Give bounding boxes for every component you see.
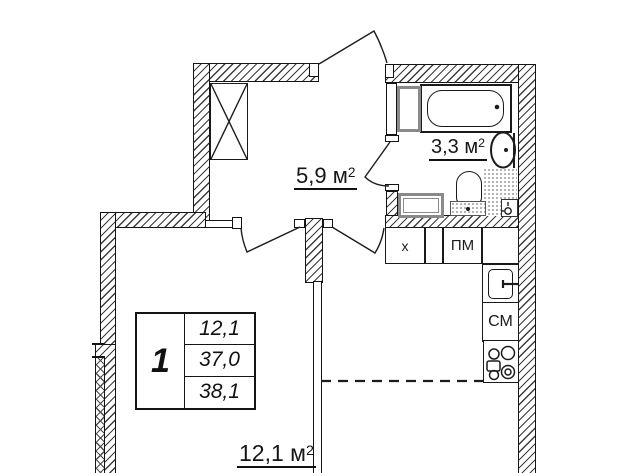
bathroom-cabinet-icon bbox=[397, 86, 421, 132]
wall-left-insulation bbox=[95, 357, 105, 473]
wall-top-left bbox=[193, 63, 319, 82]
entrance-jamb-left bbox=[309, 63, 319, 77]
toilet-icon bbox=[456, 171, 482, 204]
hallway-area-sup: 2 bbox=[348, 165, 356, 180]
bathroom-area-text: 3,3 м bbox=[431, 136, 478, 158]
wardrobe-icon bbox=[210, 83, 248, 160]
wall-top-right bbox=[385, 64, 519, 83]
wall-vertical-hall-left bbox=[193, 63, 210, 228]
bathroom-area-sup: 2 bbox=[478, 136, 485, 150]
kitchen-sink-bowl bbox=[488, 269, 513, 299]
washer-label-text: СМ bbox=[488, 313, 513, 331]
pillar-jamb-right bbox=[323, 219, 333, 228]
dishwasher-label: ПМ bbox=[443, 227, 482, 264]
living-room-area-sup: 2 bbox=[306, 443, 314, 459]
wall-right bbox=[518, 64, 536, 473]
bathroom-area-label: 3,3 м2 bbox=[429, 137, 487, 161]
bathroom-wall-left-bottom bbox=[386, 191, 398, 218]
washer-label: СМ bbox=[482, 302, 519, 342]
legend-floor-area-value: 37,0 bbox=[185, 345, 254, 376]
bathroom-door-jamb-top bbox=[385, 135, 399, 142]
entrance-jamb-right bbox=[385, 64, 394, 78]
washbasin-icon bbox=[491, 133, 515, 169]
legend-total-area-value: 38,1 bbox=[185, 377, 254, 408]
pillar-jamb-left bbox=[294, 219, 305, 228]
hallway-area-text: 5,9 м bbox=[296, 163, 348, 188]
living-room-area-text: 12,1 м bbox=[239, 440, 306, 466]
bathroom-door-swing bbox=[365, 142, 390, 186]
floor-plan: х ПМ СМ 5,9 м2 3,3 м2 12,1 м2 1 12,1 37,… bbox=[0, 0, 640, 473]
kitchen-door-swing bbox=[332, 227, 384, 253]
bathtub-inner-icon bbox=[427, 90, 504, 127]
bathroom-door-jamb-bottom bbox=[385, 184, 399, 191]
wall-ledge-tick-2 bbox=[92, 356, 105, 358]
room-door-jamb bbox=[232, 217, 242, 229]
legend-living-area-value: 12,1 bbox=[185, 314, 254, 345]
toilet-base bbox=[450, 201, 486, 216]
legend-table: 1 12,1 37,0 38,1 bbox=[135, 312, 256, 410]
bathroom-wall-left-top bbox=[386, 83, 397, 135]
living-room-door-swing bbox=[241, 227, 300, 252]
living-room-area-label: 12,1 м2 bbox=[237, 441, 316, 468]
hallway-area-label: 5,9 м2 bbox=[294, 164, 357, 190]
wall-left-upper bbox=[100, 212, 116, 346]
wall-ledge-tick-1 bbox=[92, 343, 105, 345]
floor-drain-icon bbox=[501, 199, 518, 217]
partition-pillar bbox=[305, 218, 323, 283]
fridge-label-text: х bbox=[402, 238, 409, 254]
fridge-label: х bbox=[385, 227, 425, 264]
washing-machine-inner bbox=[403, 198, 439, 213]
washing-machine-icon bbox=[398, 193, 444, 218]
legend-room-count: 1 bbox=[137, 314, 185, 408]
dishwasher-label-text: ПМ bbox=[451, 237, 474, 254]
entrance-door-swing bbox=[319, 31, 387, 64]
stove-icon bbox=[483, 340, 519, 383]
